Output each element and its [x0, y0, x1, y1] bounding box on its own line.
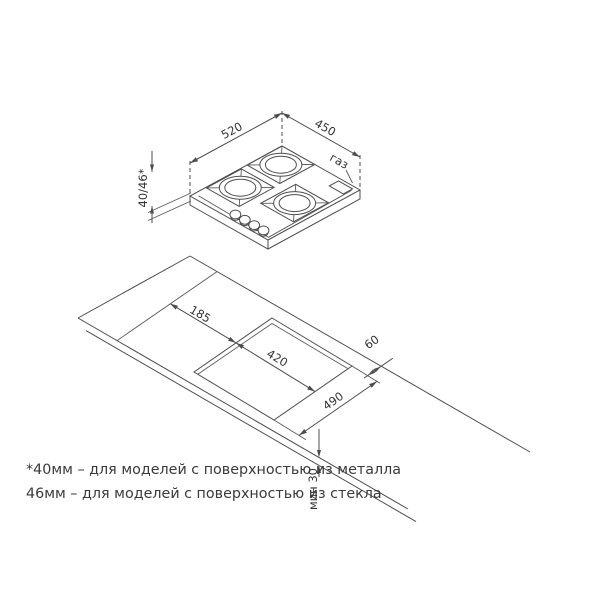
- footnote-line-2: 46мм – для моделей с поверхностью из сте…: [26, 486, 382, 502]
- width-dimension-label: 520: [219, 119, 245, 142]
- cutout-width-dimension-label: 490: [320, 389, 346, 413]
- rear-clearance-arrow-b: [374, 366, 382, 372]
- height-extension-top: [148, 193, 191, 213]
- offset-dimension-label: 185: [187, 302, 213, 325]
- countertop-cutout-view: 185 420 490 60 мин 30: [78, 256, 530, 522]
- knob-1: [230, 210, 241, 219]
- hob-installation-diagram: 520 450 газ 40/46* 185 420: [0, 0, 600, 600]
- width-extension-front: [274, 420, 306, 440]
- footnote-line-1: *40мм – для моделей с поверхностью из ме…: [26, 462, 401, 478]
- rear-clearance-label: 60: [362, 332, 382, 352]
- height-dimension: 40/46*: [136, 151, 191, 223]
- height-dimension-label: 40/46*: [136, 168, 150, 207]
- knob-4: [258, 226, 269, 235]
- hob-isometric-view: 520 450 газ 40/46*: [136, 110, 360, 249]
- counter-back-edge: [190, 256, 530, 452]
- gas-leader-line: [346, 170, 353, 183]
- counter-left-edge: [78, 256, 190, 318]
- footnote: *40мм – для моделей с поверхностью из ме…: [26, 462, 401, 502]
- height-extension-bottom: [148, 201, 191, 221]
- height-arrow-down: [150, 165, 154, 173]
- gas-label: газ: [327, 150, 351, 172]
- control-knobs: [230, 210, 269, 236]
- rear-clearance-arrow-a: [368, 369, 376, 375]
- depth-dimension-label: 450: [312, 116, 338, 139]
- burner-front: [261, 184, 329, 222]
- knob-3: [249, 221, 260, 230]
- installation-drawing: 520 450 газ 40/46* 185 420: [0, 0, 600, 600]
- knob-2: [239, 215, 250, 224]
- cutout-depth-dimension-label: 420: [264, 346, 290, 369]
